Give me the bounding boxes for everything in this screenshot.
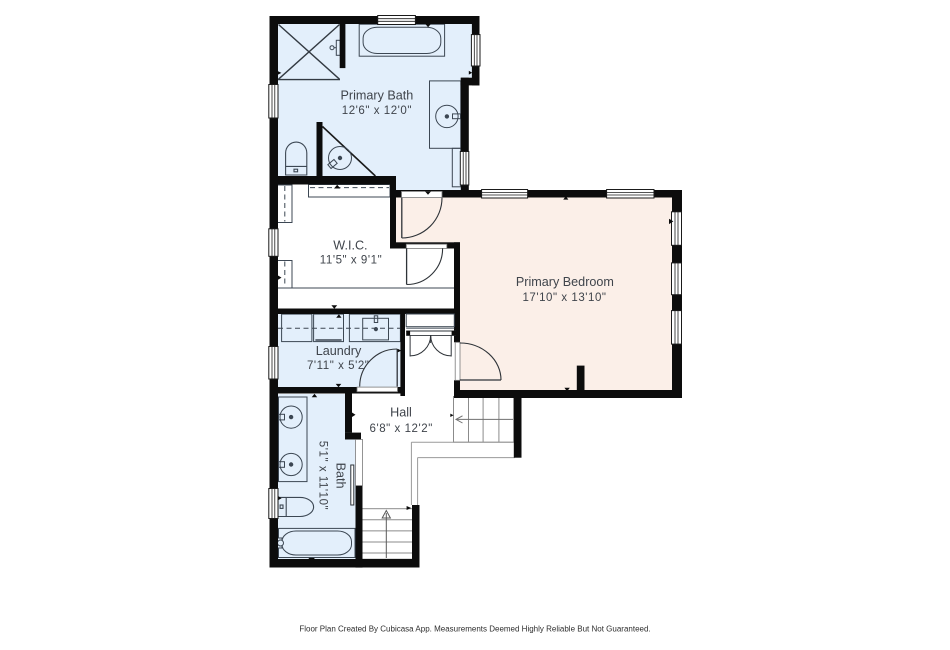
svg-text:Hall: Hall [390,405,412,419]
svg-text:W.I.C.: W.I.C. [333,239,367,253]
svg-text:Primary Bedroom: Primary Bedroom [516,275,614,289]
svg-text:6'8" x 12'2": 6'8" x 12'2" [370,423,433,435]
svg-text:12'6" x 12'0": 12'6" x 12'0" [342,105,412,117]
svg-text:7'11" x 5'2": 7'11" x 5'2" [307,360,369,372]
svg-text:Laundry: Laundry [316,344,362,358]
svg-text:5'1" x 11'10": 5'1" x 11'10" [316,441,328,510]
svg-text:11'5" x 9'1": 11'5" x 9'1" [320,255,382,267]
svg-text:Floor Plan Created By Cubicasa: Floor Plan Created By Cubicasa App. Meas… [299,625,650,634]
svg-text:17'10" x 13'10": 17'10" x 13'10" [522,292,606,304]
svg-text:Primary Bath: Primary Bath [341,88,414,102]
svg-text:Bath: Bath [334,463,348,489]
